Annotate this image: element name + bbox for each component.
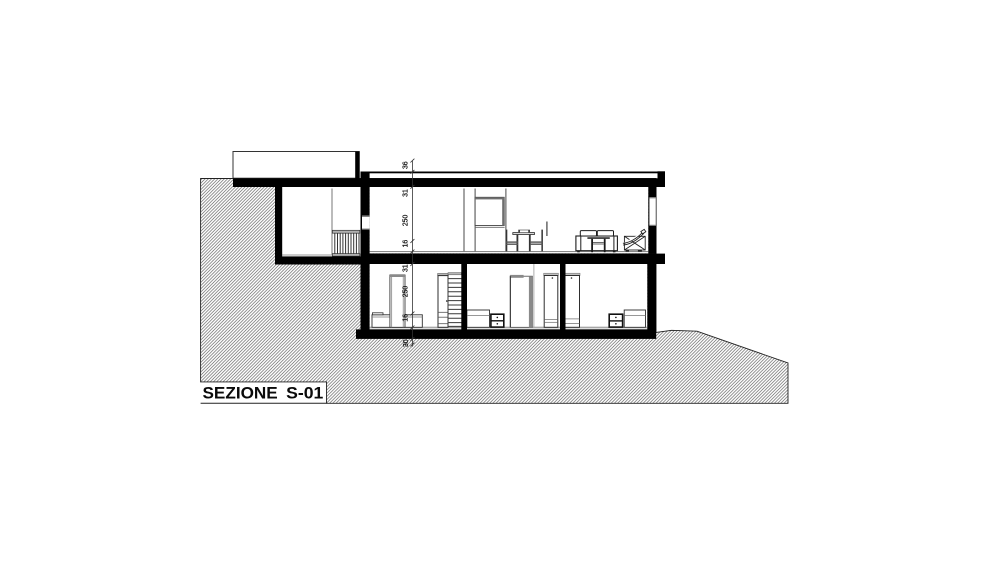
svg-text:SEZIONE: SEZIONE	[203, 383, 278, 402]
svg-text:31: 31	[403, 189, 410, 197]
svg-text:16: 16	[403, 314, 410, 322]
svg-text:36: 36	[403, 161, 410, 169]
svg-text:16: 16	[403, 240, 410, 248]
svg-text:31: 31	[403, 264, 410, 272]
svg-text:30: 30	[403, 339, 410, 347]
svg-text:250: 250	[403, 286, 410, 298]
svg-text:250: 250	[403, 214, 410, 226]
svg-text:S-01: S-01	[286, 383, 323, 402]
